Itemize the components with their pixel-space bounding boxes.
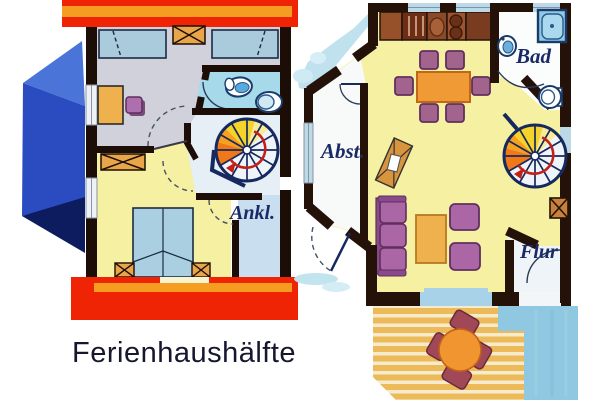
svg-text:Bad: Bad	[515, 44, 552, 68]
svg-text:Abst.: Abst.	[319, 139, 365, 163]
svg-text:Ferienhaushälfte: Ferienhaushälfte	[72, 337, 296, 369]
svg-text:Ankl.: Ankl.	[228, 202, 275, 224]
svg-text:Flur: Flur	[519, 241, 558, 263]
